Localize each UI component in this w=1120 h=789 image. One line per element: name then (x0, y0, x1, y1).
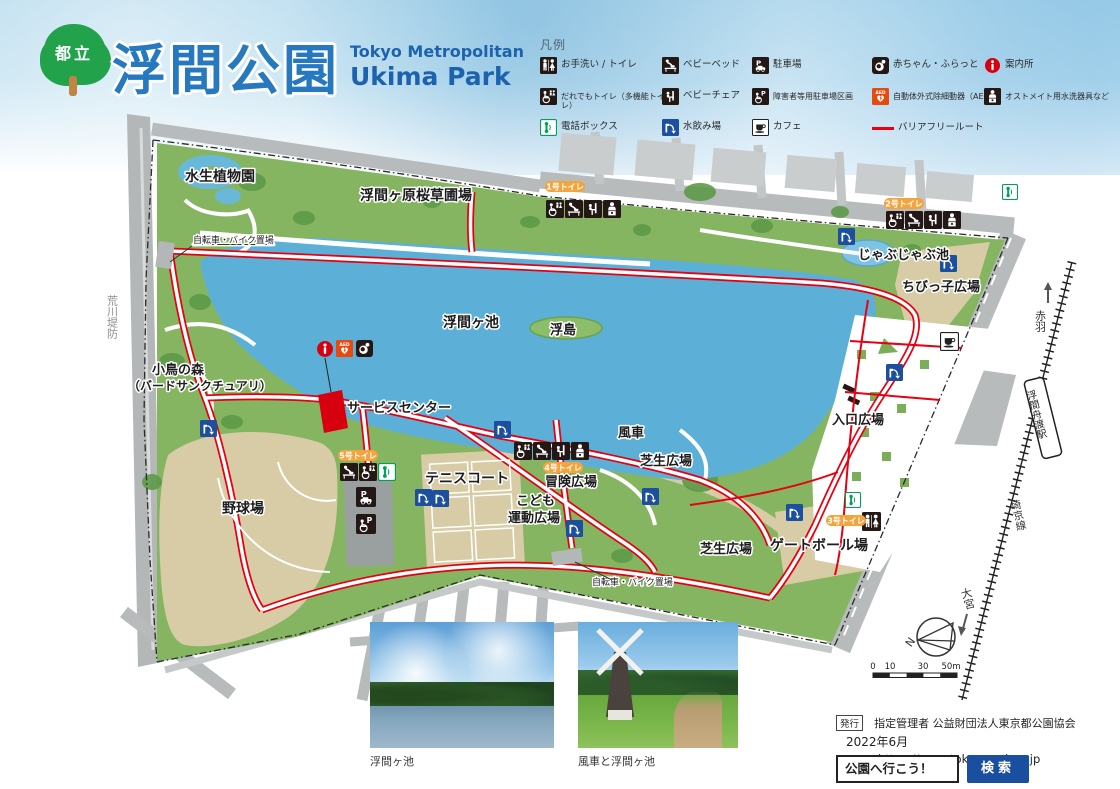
photo-ukima-pond (370, 622, 554, 748)
drinking-fountain-icon (432, 490, 449, 507)
accessible-parking-icon (752, 88, 769, 105)
svg-text:5号トイレ: 5号トイレ (339, 452, 377, 461)
baby-chair-icon (584, 200, 602, 218)
legend-item-phone-booth: 電話ボックス (540, 119, 670, 136)
accessible-parking-icon (356, 514, 376, 534)
svg-text:荒川堤防: 荒川堤防 (106, 295, 119, 340)
baby-bed-icon (340, 463, 358, 481)
baby-bed-icon (565, 200, 583, 218)
svg-text:浮間ヶ原桜草圃場: 浮間ヶ原桜草圃場 (360, 187, 472, 204)
drinking-fountain-icon (642, 488, 659, 505)
accessible-toilet-icon (546, 200, 564, 218)
drinking-fountain-icon (662, 119, 679, 136)
baby-bed-icon (905, 211, 923, 229)
svg-text:じゃぶじゃぶ池: じゃぶじゃぶ池 (858, 247, 949, 263)
svg-text:小鳥の森: 小鳥の森 (152, 362, 205, 378)
svg-text:冒険広場: 冒険広場 (545, 474, 597, 490)
svg-text:赤羽: 赤羽 (1034, 310, 1047, 332)
page-title: 浮間公園 (112, 26, 340, 105)
ostomate-icon (571, 442, 589, 460)
drinking-fountain-icon (566, 520, 583, 537)
svg-text:0: 0 (870, 662, 875, 672)
subtitle-en-line1: Tokyo Metropolitan (350, 42, 524, 61)
svg-text:テニスコート: テニスコート (425, 471, 509, 487)
drinking-fountain-icon (494, 421, 511, 438)
legend-item-parking: 駐車場 (752, 57, 882, 74)
svg-text:（バードサンクチュアリ）: （バードサンクチュアリ） (128, 378, 272, 393)
legend-item-barrier-free-route: バリアフリールート (872, 120, 1002, 134)
baby-chair-icon (552, 442, 570, 460)
svg-text:こども: こども (516, 494, 555, 509)
svg-text:1号トイレ: 1号トイレ (546, 183, 584, 192)
search-row: 公園へ行こう！ 検索 (836, 755, 1029, 783)
svg-text:埼京線: 埼京線 (1008, 498, 1027, 532)
cafe-icon (941, 333, 959, 351)
svg-text:4号トイレ: 4号トイレ (544, 464, 582, 473)
svg-text:30: 30 (918, 662, 929, 672)
svg-text:浮間ヶ池: 浮間ヶ池 (443, 314, 499, 331)
svg-text:N: N (903, 635, 918, 649)
baby-rest-icon (356, 340, 373, 357)
svg-text:10: 10 (885, 662, 896, 672)
svg-text:芝生広場: 芝生広場 (640, 453, 692, 469)
information-icon (984, 57, 1001, 74)
svg-text:芝生広場: 芝生広場 (700, 541, 752, 557)
legend-item-cafe: カフェ (752, 119, 882, 136)
svg-text:水生植物園: 水生植物園 (185, 168, 255, 185)
svg-text:サービスセンター: サービスセンター (347, 400, 451, 416)
information-icon (317, 341, 333, 357)
svg-text:風車: 風車 (618, 425, 644, 441)
parking-icon (356, 487, 376, 507)
svg-text:3号トイレ: 3号トイレ (827, 517, 865, 526)
baby-bed-icon (533, 442, 551, 460)
drinking-fountain-icon (786, 504, 803, 521)
ostomate-icon (984, 88, 1001, 105)
svg-text:自転車・バイク置場: 自転車・バイク置場 (592, 576, 673, 588)
svg-text:野球場: 野球場 (222, 500, 264, 517)
baby-bed-icon (662, 57, 679, 74)
aed-icon (872, 88, 889, 105)
svg-text:運動広場: 運動広場 (508, 510, 560, 526)
photo-caption: 浮間ヶ池 (370, 753, 414, 769)
publisher-text: 指定管理者 公益財団法人東京都公園協会 (874, 717, 1076, 730)
search-button[interactable]: 検索 (967, 755, 1029, 783)
baby-rest-icon (872, 57, 889, 74)
barrier-free-route-swatch (872, 127, 894, 130)
phone-booth-icon (379, 464, 396, 481)
issue-label: 発行 (836, 715, 863, 731)
drinking-fountain-icon (886, 364, 903, 381)
svg-text:ゲートボール場: ゲートボール場 (770, 537, 868, 554)
badge-label: 都立 (38, 40, 110, 64)
accessible-toilet-icon (514, 442, 532, 460)
subtitle-en-line2: Ukima Park (350, 62, 511, 91)
accessible-toilet-icon (540, 88, 557, 105)
svg-text:大宮: 大宮 (958, 585, 976, 611)
legend-item-toilet: お手洗い / トイレ (540, 57, 670, 74)
legend-item-baby-rest: 赤ちゃん・ふらっと (872, 57, 1002, 74)
parking-icon (752, 57, 769, 74)
scale-bar: 0 10 30 50m (870, 662, 960, 678)
legend-item-accessible-toilet: だれでもトイレ（多機能トイレ） (540, 88, 670, 110)
windmill-graphic (578, 622, 738, 748)
svg-text:入口広場: 入口広場 (832, 412, 884, 428)
legend-item-information: 案内所 (984, 57, 1114, 74)
ostomate-icon (603, 200, 621, 218)
drinking-fountain-icon (415, 489, 432, 506)
drinking-fountain-icon (838, 228, 855, 245)
publish-date: 2022年6月 (846, 735, 908, 749)
svg-text:浮島: 浮島 (550, 322, 576, 338)
svg-text:自転車・バイク置場: 自転車・バイク置場 (193, 234, 274, 246)
aed-icon (336, 340, 353, 357)
accessible-toilet-icon (886, 211, 904, 229)
svg-text:2号トイレ: 2号トイレ (885, 200, 923, 209)
phone-booth-icon (1002, 184, 1017, 199)
compass: N (903, 618, 955, 656)
legend-item-ostomate: オストメイト用水洗器具など (984, 88, 1114, 105)
drinking-fountain-icon (200, 420, 217, 437)
baby-chair-icon (662, 88, 679, 105)
cafe-icon (752, 119, 769, 136)
ostomate-icon (943, 211, 961, 229)
tokyo-metropolitan-badge: 都立 (38, 22, 110, 100)
phone-booth-icon (845, 492, 860, 507)
svg-text:ちびっ子広場: ちびっ子広場 (902, 279, 980, 295)
phone-booth-icon (540, 119, 557, 136)
accessible-toilet-icon (359, 463, 377, 481)
legend-item-accessible-parking: 障害者等用駐車場区画 (752, 88, 882, 105)
legend-title: 凡例 (540, 36, 566, 53)
baby-chair-icon (924, 211, 942, 229)
toilet-icon (540, 57, 557, 74)
photo-windmill (578, 622, 738, 748)
svg-text:50m: 50m (941, 662, 960, 672)
search-input[interactable]: 公園へ行こう！ (836, 755, 959, 783)
legend-item-aed: 自動体外式除細動器（AED） (872, 88, 1002, 105)
photo-caption: 風車と浮間ヶ池 (578, 753, 655, 769)
